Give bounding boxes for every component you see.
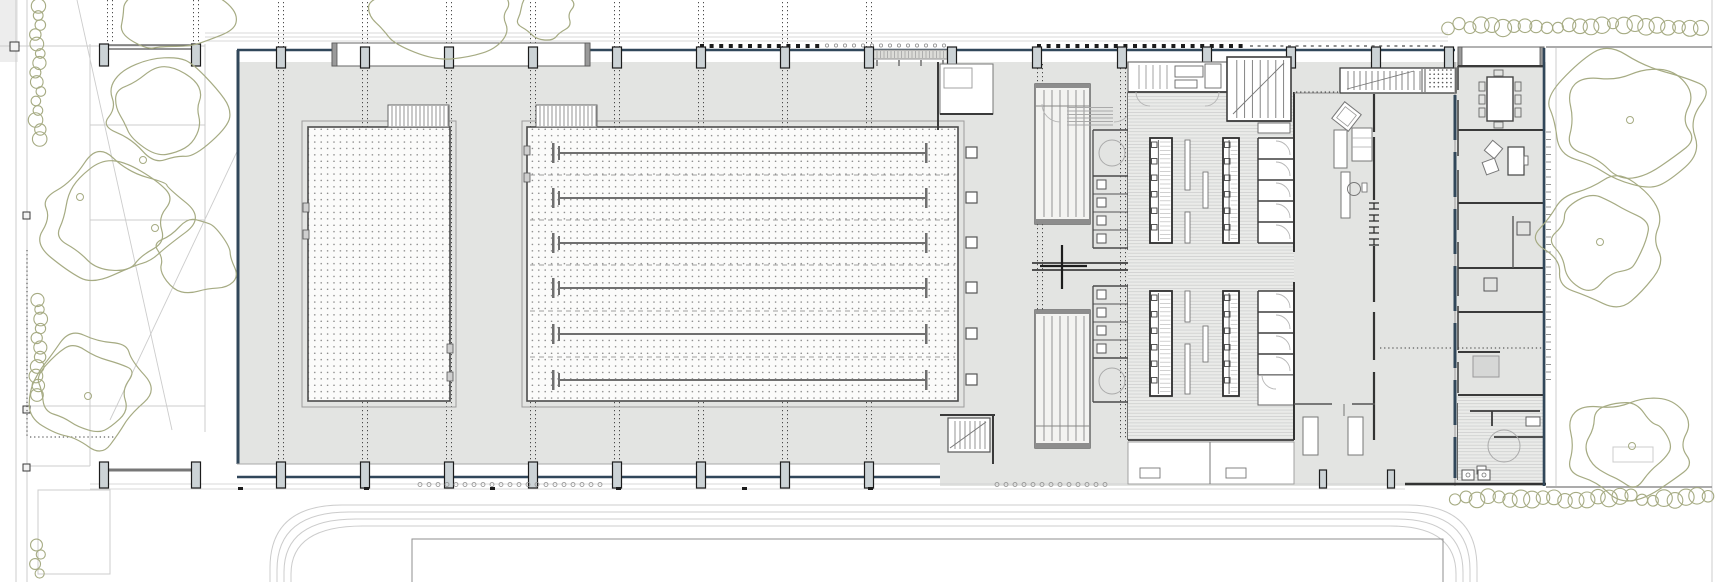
louver-band [806,44,810,48]
louver-band [758,44,762,48]
shed-outline [38,490,110,574]
meeting-table [1487,77,1513,121]
lobby-bench [1341,172,1350,218]
ramp-dots [1429,78,1431,80]
lane-line [552,188,555,208]
louver-band [843,44,846,47]
louver-band [1250,45,1253,47]
bike-row [427,483,431,487]
tree-canopy [517,0,573,40]
ramp-dots [1433,86,1435,88]
ramp-dots [1442,69,1444,71]
louver-band [1326,45,1329,47]
bench-deck [1035,310,1090,314]
wc-basin [1526,417,1540,426]
tree-trunk [1627,117,1634,124]
urinal [1478,470,1490,480]
hedge-row [1464,22,1476,34]
lane-line [558,236,560,250]
bike-row [580,483,584,487]
lane-line [558,327,560,341]
louver-band [1425,45,1428,47]
bike-row [463,483,467,487]
bike-row [544,483,548,487]
locker-bank [1150,291,1172,396]
wc-fixture [1097,198,1106,207]
starting-block [966,374,977,385]
bench [1348,417,1363,455]
tree-canopy [106,58,230,161]
footing-marks [868,487,873,490]
tree-canopy [116,67,201,155]
column-south [100,462,109,488]
road-curve-2 [277,512,1470,582]
louver-band [1402,45,1405,47]
column-north [277,47,286,68]
entry-stair [1340,68,1456,93]
ramp-dots [1433,78,1435,80]
louver-band [1387,45,1390,47]
wc-fixture [1097,180,1106,189]
ramp-dots [1442,78,1444,80]
column-north [1372,47,1381,68]
louver-band [879,44,882,47]
tree-trunk [152,225,159,232]
hedge-row [1625,489,1637,501]
hedge-row [1579,492,1595,508]
bench [1185,140,1190,190]
pool-ladder [524,173,530,182]
footing-marks [238,487,243,490]
lane-line [925,188,928,208]
starting-block [966,328,977,339]
louver-band [1318,45,1321,47]
hedge-row [1648,495,1659,506]
hedge-row [32,132,47,147]
louver-band [1066,44,1070,48]
lane-line [925,324,928,344]
louver-band [1095,44,1099,48]
hedge-row [29,369,43,383]
tree-canopy [1551,195,1648,290]
ramp-dots [1433,69,1435,71]
corner-band [0,0,18,62]
ramp-dots [1438,86,1440,88]
louver-band [1303,45,1306,47]
terrace-edge [412,539,1443,582]
bench-deck [1035,310,1090,448]
bench [1303,417,1318,455]
starting-block [966,237,977,248]
bike-row [553,483,557,487]
lane-line [552,324,555,344]
louver-band [825,44,828,47]
hedge-row [31,293,44,306]
footing-marks [490,487,495,490]
lane-line [552,143,555,163]
wc-fixture [1097,326,1106,335]
wc-fixture [1097,234,1106,243]
louver-band [738,44,742,48]
tree-trunk [1629,443,1636,450]
tree-canopy [38,346,132,432]
lane-line [558,373,560,387]
hedge-row [30,559,41,570]
louver-band [1265,45,1268,47]
hedge-row [1485,18,1500,33]
ramp-dots [1450,82,1452,84]
bike-row [454,483,458,487]
hedge-row [34,351,45,362]
louver-band [1152,44,1156,48]
column-north [529,47,538,68]
column-south [1388,470,1395,488]
louver-band [1104,44,1108,48]
louver-band [1219,44,1223,48]
louver-band [1258,45,1261,47]
cubicle-room [1258,375,1294,405]
louver-band [1356,45,1359,47]
hedge-row [1649,17,1665,33]
hedge-row [1638,19,1654,35]
tree-canopy [156,219,236,292]
grille-ticks [920,60,922,66]
louver-band [1229,44,1233,48]
column-south [192,462,201,488]
louver-band [1273,45,1276,47]
louver-band [1239,44,1243,48]
bike-row [499,483,503,487]
bike-row [517,483,521,487]
column-north [445,47,454,68]
bike-row [589,483,593,487]
bench-deck [1035,219,1090,224]
lane-line [925,370,928,390]
louver-band [1341,45,1344,47]
grille-ticks [876,60,878,66]
ramp-dots [1433,82,1435,84]
ramp-dots [1450,86,1452,88]
column-north [192,44,201,66]
floor-plan-canvas [0,0,1729,582]
louver-band [748,44,752,48]
tree-trunk [140,157,147,164]
column-south [1320,470,1327,488]
road-curve-4 [291,526,1456,582]
ramp-dots [1442,86,1444,88]
hedge-row [1608,18,1619,29]
desk-return [1524,156,1528,165]
pool-ladder [303,203,309,212]
bench [1203,326,1208,362]
pool-ladder [303,230,309,239]
bike-row [472,483,476,487]
louver-band [1440,45,1443,47]
hedge-row [36,87,46,97]
main-pool [527,127,958,401]
ramp-dots [1446,78,1448,80]
pool-ladder [524,146,530,155]
louver-band [815,44,819,48]
locker-bank [1150,138,1172,243]
louver-band [1133,44,1137,48]
louver-band [719,44,723,48]
louver-band [933,44,936,47]
lane-line [558,146,560,160]
tree-trunk [77,194,84,201]
ramp-dots [1433,73,1435,75]
louver-band [942,44,945,47]
lane-line [558,281,560,295]
column-north [865,47,874,68]
ramp-dots [1450,73,1452,75]
pool-ladder [447,372,453,381]
ramp-dots [1438,82,1440,84]
bench-deck [1035,443,1090,448]
bike-row [490,483,494,487]
hedge-row [33,11,43,21]
pools [302,105,977,407]
bike-row [598,483,602,487]
ramp-dots [1442,73,1444,75]
hedge-row [30,29,41,40]
bike-row [571,483,575,487]
column-north [613,47,622,68]
tree-canopy [40,151,196,280]
ramp-dots [1450,69,1452,71]
lobby-side-table [1362,183,1367,192]
wc-fixture [1097,308,1106,317]
footing-marks [616,487,621,490]
tree-trunk [1597,239,1604,246]
louver-band [729,44,733,48]
service-counter [1205,64,1221,88]
starting-block [966,147,977,158]
hedge-row [1667,493,1683,509]
ramp-dots [1446,69,1448,71]
lane-line [552,370,555,390]
louver-band [1394,45,1397,47]
louver-band [1432,45,1435,47]
ramp-dots [1438,69,1440,71]
column-south [865,462,874,488]
footing-marks [742,487,747,490]
lane-line [552,233,555,253]
hedge-row [31,539,43,551]
ramp-dots [1438,73,1440,75]
hedge-row [1583,19,1599,35]
louver-band [710,44,714,48]
lane-line [552,278,555,298]
louver-band [852,44,855,47]
hedge-row [31,96,41,106]
hedge-row [1449,494,1460,505]
locker-bank [1223,291,1239,396]
ramp-dots [1429,69,1431,71]
louver-band [1334,45,1337,47]
service-counter [1175,80,1197,88]
ramp-dots [1429,86,1431,88]
louver-band [1417,45,1420,47]
lobby-sofa [1334,130,1347,168]
louver-band [1311,45,1314,47]
column-north [697,47,706,68]
column-north [1033,47,1042,68]
column-south [781,462,790,488]
lane-line [925,143,928,163]
louver-band [1143,44,1147,48]
bike-row [508,483,512,487]
road-curve-3 [284,519,1463,582]
bike-row [481,483,485,487]
louver-band [1280,45,1283,47]
store-unit [1473,356,1499,377]
wc-fixture [1097,290,1106,299]
louver-band [1349,45,1352,47]
bench [1203,172,1208,208]
entry-vestibule-north [332,43,590,66]
ramp-dots [1438,78,1440,80]
starting-block [966,282,977,293]
grille-ticks [898,60,900,66]
urinal [1462,470,1474,480]
hedge-row [1541,22,1552,33]
louver-band [1056,44,1060,48]
louver-band [1162,44,1166,48]
louver-band [888,44,891,47]
louver-band [897,44,900,47]
louver-band [915,44,918,47]
plant-room [940,64,993,114]
hedge-row [1694,20,1709,35]
bench [1185,344,1190,394]
column-south [277,462,286,488]
column-north [781,47,790,68]
hedge-row [1627,16,1643,32]
louver-band [1181,44,1185,48]
ramp-dots [1442,82,1444,84]
bench [1185,291,1190,322]
vestibule-pier [1458,47,1462,67]
fence-post [23,212,30,219]
office-desk [1508,147,1524,175]
fence-post [23,464,30,471]
column-north [361,47,370,68]
louver-band [1191,44,1195,48]
floor-plan-drawing [0,0,1729,582]
changing-rooms [1128,57,1294,484]
entry-vestibule-east [1458,47,1544,67]
bench [1185,212,1190,243]
ramp-dots [1429,73,1431,75]
hedge-row [33,106,43,116]
ramp-dots [1429,82,1431,84]
column-south [613,462,622,488]
louver-band [834,44,837,47]
footing-marks [364,487,369,490]
road-curve-1 [270,505,1477,582]
starting-block [966,192,977,203]
hedge-row [1678,489,1694,505]
teaching-pool [308,127,450,401]
hedge-row [31,389,44,402]
service-counter [1175,66,1203,77]
lane-line [925,278,928,298]
tree-canopy [1570,398,1690,501]
shelf [1258,123,1290,133]
lane-line [558,191,560,205]
louver-band [1171,44,1175,48]
bench-deck [1035,84,1090,88]
column-north [1118,47,1127,68]
louver-band [1410,45,1413,47]
lane-line [925,233,928,253]
louver-band [796,44,800,48]
vestibule-pier [585,43,590,66]
fence-post [10,42,19,51]
ramp-dots [1446,73,1448,75]
bike-row [562,483,566,487]
louver-band [924,44,927,47]
hedge-row [1591,489,1605,503]
hedge-row [1453,18,1465,30]
louver-band [767,44,771,48]
hedge-row [1673,21,1686,34]
tree-canopy [58,161,170,271]
column-south [697,462,706,488]
ramp-dots [1450,78,1452,80]
bike-row [436,483,440,487]
louver-band [1364,45,1367,47]
vestibule-pier [332,43,337,66]
louver-band [906,44,909,47]
louver-band [1085,44,1089,48]
louver-band [1075,44,1079,48]
column-north [1445,47,1454,68]
ramp-dots [1446,86,1448,88]
locker-bank [1223,138,1239,243]
column-south [361,462,370,488]
lobby-armchair [1352,128,1372,161]
column-north [100,44,109,66]
louver-band [1047,44,1051,48]
bike-row [418,483,422,487]
bench-deck [1035,84,1090,224]
wc-fixture [1097,216,1106,225]
pool-ladder [447,344,453,353]
ramp-dots [1446,82,1448,84]
wc-fixture [1097,344,1106,353]
